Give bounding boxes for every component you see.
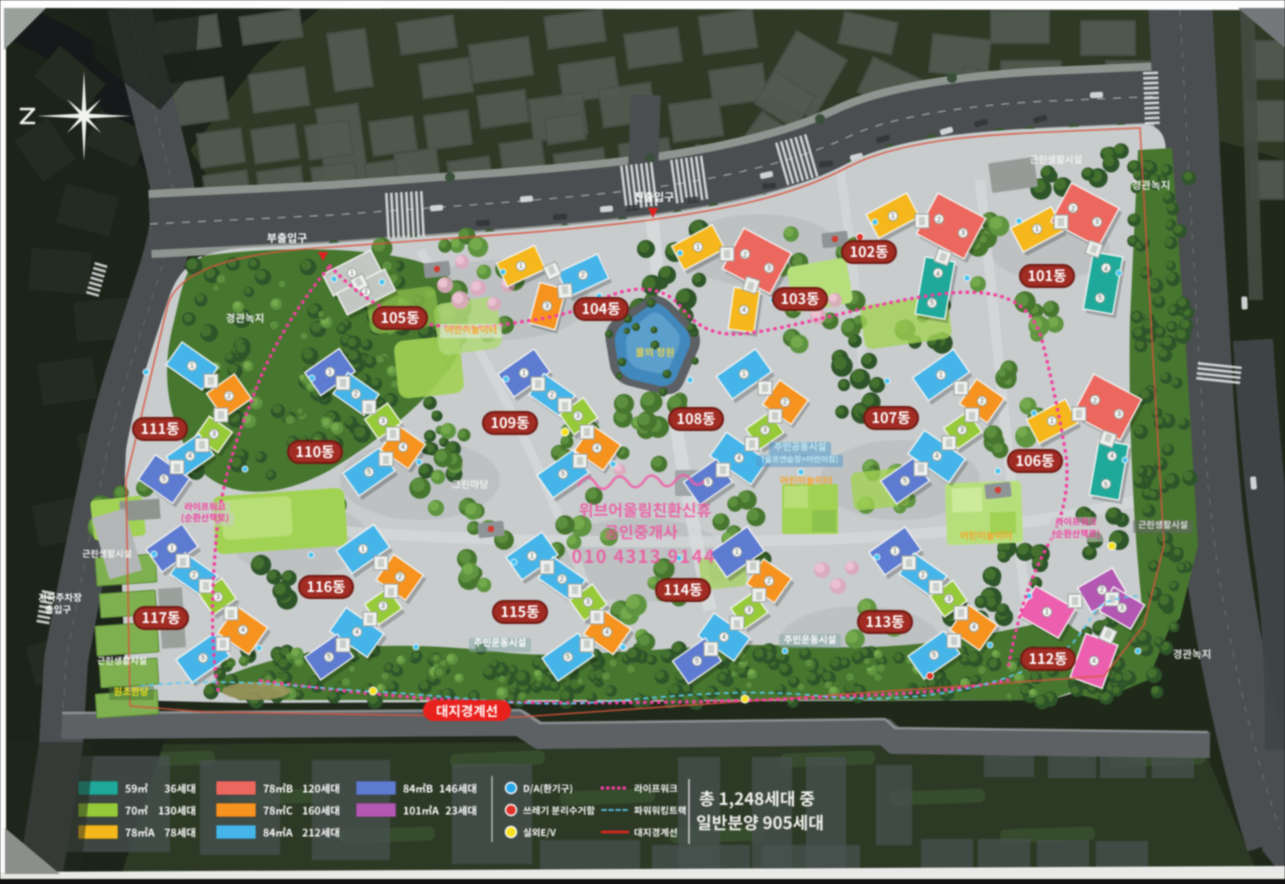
svg-text:4: 4 (722, 634, 726, 641)
svg-text:1: 1 (893, 548, 897, 555)
svg-text:4: 4 (595, 445, 599, 452)
svg-text:5: 5 (1104, 482, 1108, 489)
svg-text:1: 1 (696, 244, 700, 251)
svg-text:3: 3 (586, 599, 590, 606)
svg-text:1: 1 (939, 372, 943, 379)
svg-text:4: 4 (1110, 453, 1114, 460)
svg-text:3: 3 (576, 413, 580, 420)
svg-text:4: 4 (241, 627, 245, 634)
svg-text:5: 5 (162, 476, 166, 483)
svg-text:3: 3 (381, 418, 385, 425)
svg-text:1: 1 (522, 370, 526, 377)
svg-text:4: 4 (605, 629, 609, 636)
svg-text:4: 4 (1104, 266, 1108, 273)
svg-text:1: 1 (519, 263, 523, 270)
svg-text:5: 5 (561, 471, 565, 478)
svg-text:1: 1 (530, 553, 534, 560)
svg-text:2: 2 (937, 217, 941, 224)
svg-text:2: 2 (1100, 587, 1104, 594)
svg-text:1: 1 (328, 369, 332, 376)
svg-text:5: 5 (201, 655, 205, 662)
svg-text:5: 5 (695, 658, 699, 665)
svg-text:1: 1 (170, 545, 174, 552)
svg-text:3: 3 (381, 603, 385, 610)
svg-text:1: 1 (1045, 609, 1049, 616)
svg-text:3: 3 (212, 431, 216, 438)
svg-text:2: 2 (743, 252, 747, 259)
svg-text:2: 2 (980, 398, 984, 405)
svg-text:5: 5 (367, 469, 371, 476)
svg-text:2: 2 (550, 392, 554, 399)
svg-text:2: 2 (354, 391, 358, 398)
svg-text:1: 1 (361, 546, 365, 553)
svg-text:4: 4 (737, 455, 741, 462)
svg-text:4: 4 (401, 444, 405, 451)
svg-text:1: 1 (735, 549, 739, 556)
svg-text:1: 1 (742, 371, 746, 378)
svg-text:3: 3 (763, 427, 767, 434)
svg-text:1: 1 (190, 363, 194, 370)
svg-text:4: 4 (742, 307, 746, 314)
svg-text:2: 2 (921, 572, 925, 579)
svg-text:2: 2 (783, 399, 787, 406)
svg-text:5: 5 (327, 654, 331, 661)
svg-text:2: 2 (398, 574, 402, 581)
svg-text:5: 5 (566, 654, 570, 661)
svg-text:2: 2 (581, 272, 585, 279)
svg-text:3: 3 (947, 596, 951, 603)
svg-text:4: 4 (188, 453, 192, 460)
svg-text:5: 5 (706, 479, 710, 486)
svg-text:3: 3 (747, 607, 751, 614)
svg-text:4: 4 (1092, 658, 1096, 665)
svg-text:2: 2 (364, 289, 368, 296)
svg-text:3: 3 (767, 265, 771, 272)
svg-text:2: 2 (767, 578, 771, 585)
svg-text:3: 3 (1095, 219, 1099, 226)
svg-text:2: 2 (560, 576, 564, 583)
svg-text:3: 3 (545, 303, 549, 310)
svg-text:2: 2 (1071, 206, 1075, 213)
svg-text:3: 3 (216, 594, 220, 601)
svg-text:5: 5 (1098, 295, 1102, 302)
svg-text:4: 4 (936, 271, 940, 278)
svg-text:5: 5 (903, 478, 907, 485)
svg-text:2: 2 (192, 572, 196, 579)
svg-text:1: 1 (891, 213, 895, 220)
svg-text:1: 1 (1050, 418, 1054, 425)
svg-text:3: 3 (1117, 411, 1121, 418)
svg-text:4: 4 (972, 624, 976, 631)
svg-text:4: 4 (935, 453, 939, 460)
svg-text:4: 4 (355, 629, 359, 636)
svg-text:1: 1 (350, 270, 354, 277)
svg-text:5: 5 (930, 300, 934, 307)
svg-text:3: 3 (1120, 605, 1124, 612)
svg-text:5: 5 (932, 652, 936, 659)
svg-text:2: 2 (227, 393, 231, 400)
svg-text:2: 2 (1093, 398, 1097, 405)
svg-text:3: 3 (960, 427, 964, 434)
svg-text:3: 3 (961, 230, 965, 237)
svg-text:1: 1 (1035, 226, 1039, 233)
